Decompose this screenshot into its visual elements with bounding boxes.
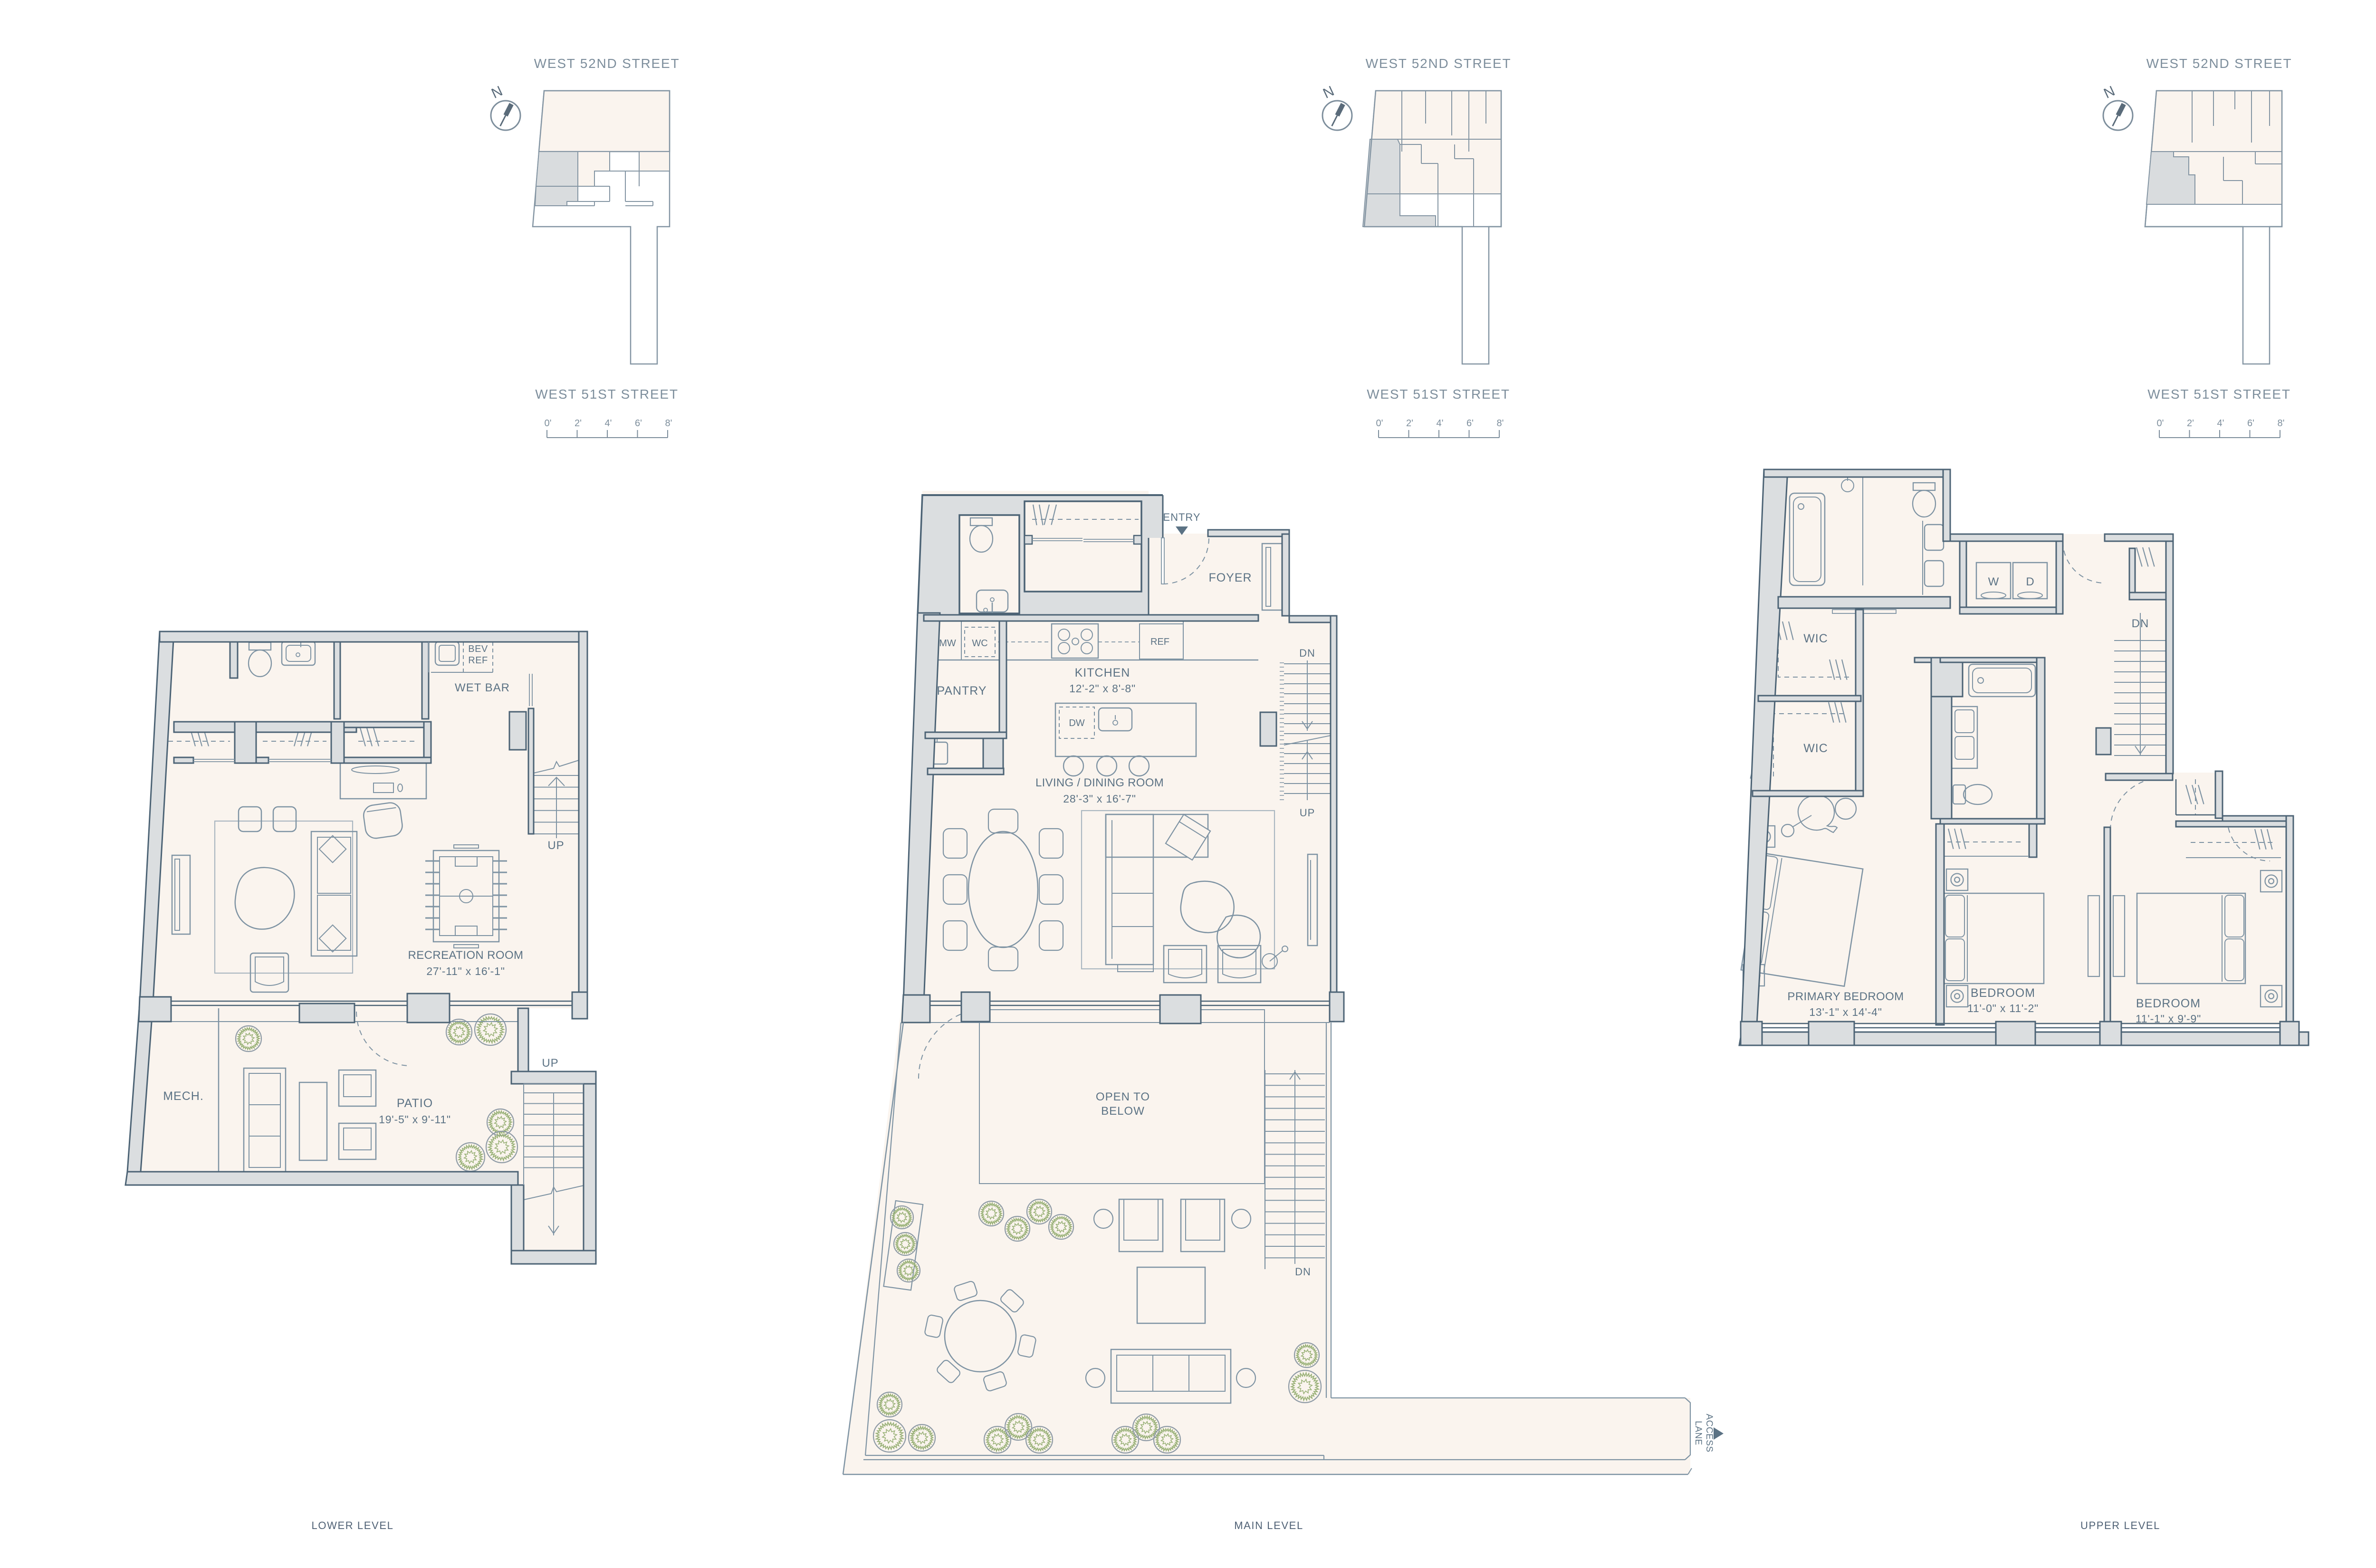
svg-text:BEDROOM: BEDROOM <box>2136 997 2201 1010</box>
svg-text:WIC: WIC <box>1803 742 1828 755</box>
svg-text:BEDROOM: BEDROOM <box>1971 986 2035 1000</box>
svg-text:28'-3" x 16'-7": 28'-3" x 16'-7" <box>1063 793 1136 805</box>
svg-text:4': 4' <box>2217 418 2224 429</box>
svg-text:W: W <box>1988 575 1999 588</box>
svg-text:27'-11" x 16'-1": 27'-11" x 16'-1" <box>426 965 505 977</box>
svg-text:WEST 51ST STREET: WEST 51ST STREET <box>1367 387 1510 402</box>
svg-text:2': 2' <box>2187 418 2194 429</box>
svg-text:WEST 51ST STREET: WEST 51ST STREET <box>535 387 679 402</box>
svg-text:WEST 52ND STREET: WEST 52ND STREET <box>1366 56 1512 71</box>
svg-text:KITCHEN: KITCHEN <box>1075 666 1131 679</box>
svg-text:DW: DW <box>1069 718 1084 728</box>
svg-text:MAIN LEVEL: MAIN LEVEL <box>1234 1520 1303 1531</box>
svg-text:PRIMARY BEDROOM: PRIMARY BEDROOM <box>1787 990 1904 1003</box>
svg-text:FOYER: FOYER <box>1208 571 1252 584</box>
svg-text:2': 2' <box>575 418 582 429</box>
svg-text:LANE: LANE <box>1693 1421 1703 1445</box>
svg-text:MW: MW <box>939 638 956 649</box>
svg-text:WEST 52ND STREET: WEST 52ND STREET <box>2146 56 2292 71</box>
svg-text:6': 6' <box>635 418 642 429</box>
svg-text:REF: REF <box>468 655 488 666</box>
svg-text:2': 2' <box>1406 418 1413 429</box>
svg-text:6': 6' <box>2247 418 2254 429</box>
svg-text:0': 0' <box>545 418 552 429</box>
svg-text:8': 8' <box>1497 418 1504 429</box>
svg-text:LOWER LEVEL: LOWER LEVEL <box>312 1520 394 1531</box>
svg-text:UPPER LEVEL: UPPER LEVEL <box>2080 1520 2160 1531</box>
svg-text:UP: UP <box>1300 807 1315 819</box>
svg-text:D: D <box>2026 575 2034 588</box>
svg-text:WET BAR: WET BAR <box>455 681 510 694</box>
svg-text:PANTRY: PANTRY <box>937 684 987 698</box>
svg-text:4': 4' <box>605 418 612 429</box>
svg-text:MECH.: MECH. <box>163 1090 204 1103</box>
svg-text:DN: DN <box>2132 617 2149 630</box>
svg-text:BELOW: BELOW <box>1101 1105 1145 1118</box>
svg-text:WEST 51ST STREET: WEST 51ST STREET <box>2147 387 2291 402</box>
svg-text:DN: DN <box>1299 647 1315 659</box>
svg-text:13'-1" x 14'-4": 13'-1" x 14'-4" <box>1809 1006 1882 1018</box>
svg-text:LIVING / DINING ROOM: LIVING / DINING ROOM <box>1035 776 1164 789</box>
svg-text:8': 8' <box>665 418 672 429</box>
svg-text:UP: UP <box>547 839 564 852</box>
svg-text:BEV: BEV <box>468 644 488 654</box>
svg-text:OPEN TO: OPEN TO <box>1096 1090 1150 1103</box>
svg-text:UP: UP <box>542 1057 558 1070</box>
svg-text:WIC: WIC <box>1803 632 1828 645</box>
svg-text:8': 8' <box>2278 418 2285 429</box>
svg-text:PATIO: PATIO <box>397 1097 433 1110</box>
svg-text:12'-2" x 8'-8": 12'-2" x 8'-8" <box>1069 682 1136 695</box>
svg-text:WEST 52ND STREET: WEST 52ND STREET <box>534 56 680 71</box>
svg-text:19'-5" x 9'-11": 19'-5" x 9'-11" <box>379 1113 451 1126</box>
svg-text:0': 0' <box>2157 418 2164 429</box>
svg-text:ACCESS: ACCESS <box>1704 1414 1714 1452</box>
svg-text:0': 0' <box>1376 418 1383 429</box>
svg-text:DN: DN <box>1295 1266 1311 1278</box>
svg-text:ENTRY: ENTRY <box>1163 511 1200 523</box>
svg-text:RECREATION ROOM: RECREATION ROOM <box>408 949 524 962</box>
svg-text:WC: WC <box>972 638 987 649</box>
svg-text:11'-0" x 11'-2": 11'-0" x 11'-2" <box>1967 1002 2039 1014</box>
svg-text:4': 4' <box>1437 418 1444 429</box>
svg-text:6': 6' <box>1466 418 1474 429</box>
svg-text:REF: REF <box>1150 637 1169 647</box>
